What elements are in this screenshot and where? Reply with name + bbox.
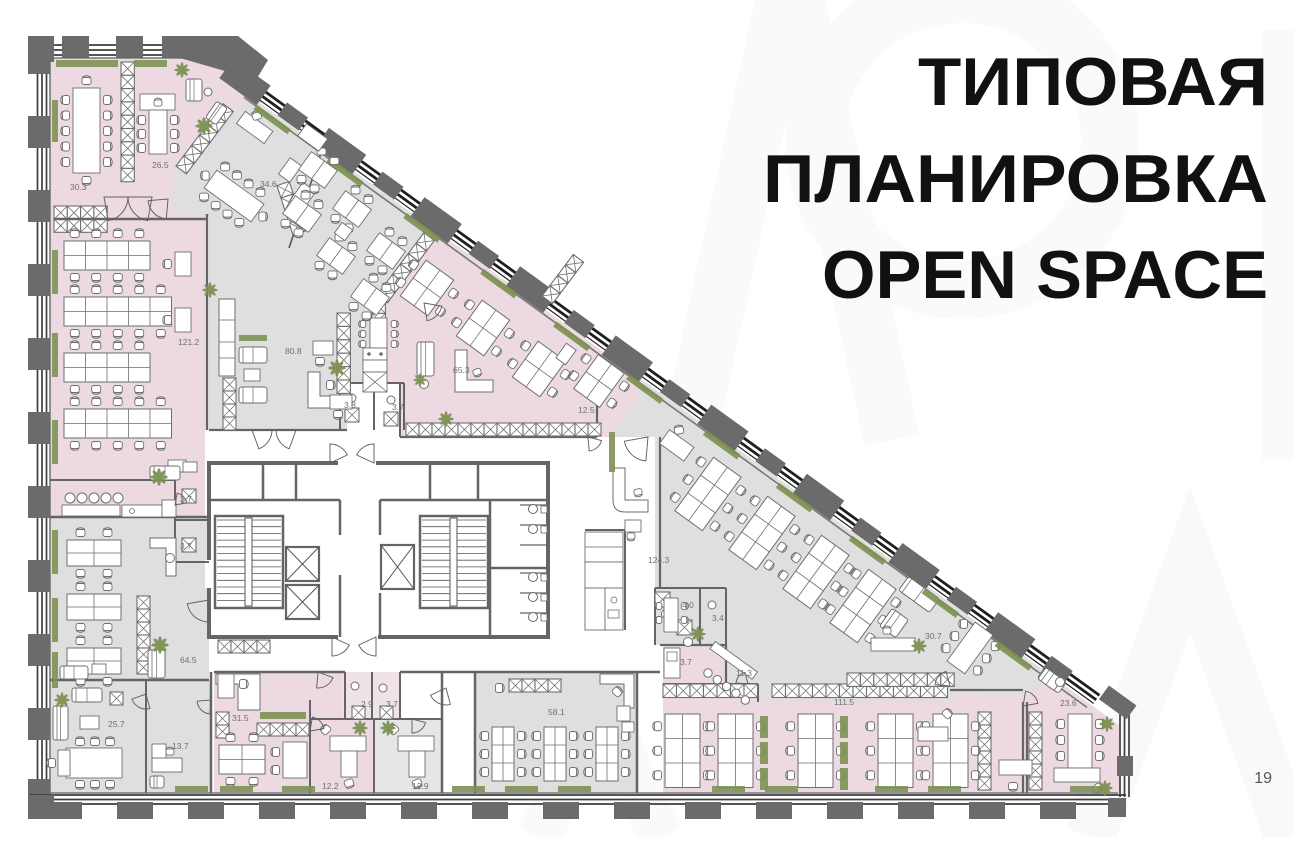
svg-text:3.7: 3.7 <box>680 657 692 667</box>
svg-text:64.5: 64.5 <box>180 655 197 665</box>
svg-text:3.7: 3.7 <box>386 699 398 709</box>
svg-text:58.1: 58.1 <box>548 707 565 717</box>
svg-text:3.4: 3.4 <box>712 613 724 623</box>
svg-text:OPEN SPACE: OPEN SPACE <box>822 237 1268 313</box>
svg-text:124.3: 124.3 <box>648 555 670 565</box>
svg-text:65.3: 65.3 <box>453 365 470 375</box>
svg-text:19: 19 <box>1254 770 1272 787</box>
svg-text:12.9: 12.9 <box>412 781 429 791</box>
svg-text:13.7: 13.7 <box>172 741 189 751</box>
svg-text:3.7: 3.7 <box>180 541 192 551</box>
svg-text:23.6: 23.6 <box>1060 698 1077 708</box>
svg-text:12.5: 12.5 <box>578 405 595 415</box>
svg-text:ТИПОВАЯ: ТИПОВАЯ <box>918 44 1268 120</box>
svg-text:25.7: 25.7 <box>108 719 125 729</box>
svg-text:11.3: 11.3 <box>736 668 752 678</box>
svg-text:26.5: 26.5 <box>152 160 169 170</box>
svg-text:12.2: 12.2 <box>322 781 339 791</box>
svg-text:ПЛАНИРОВКА: ПЛАНИРОВКА <box>763 141 1268 217</box>
svg-text:30.7: 30.7 <box>925 631 942 641</box>
svg-text:30.3: 30.3 <box>70 182 87 192</box>
svg-text:34.6: 34.6 <box>260 179 277 189</box>
svg-text:2.9: 2.9 <box>361 699 373 709</box>
svg-text:80.8: 80.8 <box>285 346 302 356</box>
svg-text:4.0: 4.0 <box>682 600 694 610</box>
svg-text:3.7: 3.7 <box>180 494 192 504</box>
svg-text:31.5: 31.5 <box>232 713 249 723</box>
svg-text:3.7: 3.7 <box>392 402 404 412</box>
svg-text:121.2: 121.2 <box>178 337 200 347</box>
svg-text:3.8: 3.8 <box>344 400 356 410</box>
svg-text:111.5: 111.5 <box>834 697 854 707</box>
